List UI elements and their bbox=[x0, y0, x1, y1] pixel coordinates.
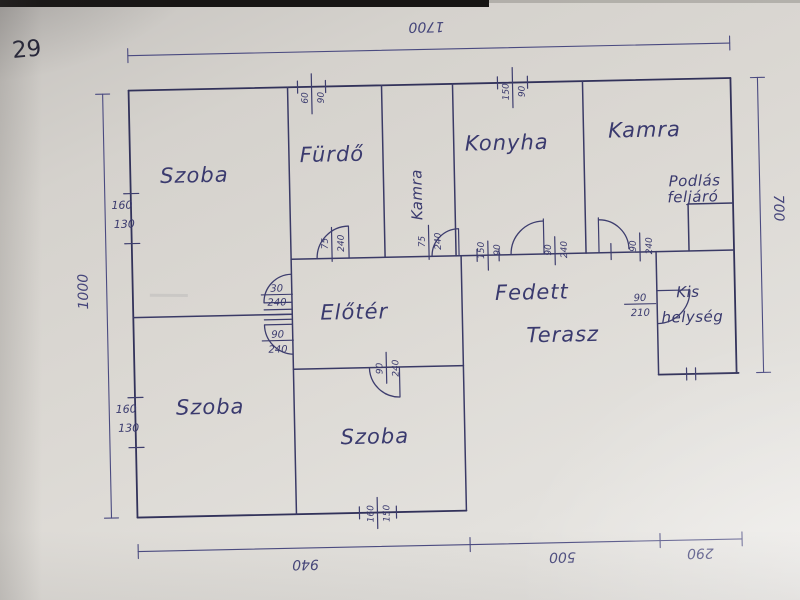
room-label-szoba-bottom-mid: Szoba bbox=[340, 424, 409, 449]
svg-text:30: 30 bbox=[270, 283, 283, 294]
svg-text:160: 160 bbox=[366, 505, 376, 523]
page-number: 29 bbox=[11, 35, 43, 64]
dim-left-value: 1000 bbox=[75, 274, 92, 310]
svg-text:130: 130 bbox=[118, 421, 139, 434]
door-szoba-lower: 90 240 bbox=[261, 324, 294, 356]
wall-furdo-kamra bbox=[382, 85, 386, 257]
attic-nook-left bbox=[688, 204, 689, 251]
window-left-bottom: 160 130 bbox=[98, 397, 158, 448]
svg-text:75: 75 bbox=[321, 237, 331, 249]
wall-outer-left bbox=[129, 91, 138, 518]
svg-text:75: 75 bbox=[418, 235, 428, 247]
wall-mid-horizontal bbox=[291, 250, 734, 259]
room-label-helyseg: helység bbox=[661, 307, 723, 326]
svg-text:240: 240 bbox=[268, 344, 287, 355]
dim-bottom-mid-value: 500 bbox=[549, 548, 576, 565]
svg-text:240: 240 bbox=[645, 237, 655, 255]
dim-left: 1000 bbox=[72, 94, 119, 519]
svg-text:90: 90 bbox=[271, 329, 284, 340]
svg-text:90: 90 bbox=[317, 91, 327, 103]
room-label-konyha: Konyha bbox=[465, 130, 549, 156]
svg-text:240: 240 bbox=[337, 234, 347, 252]
wall-konyha-kamra bbox=[582, 81, 586, 253]
room-label-szoba-bottom-left: Szoba bbox=[176, 394, 245, 419]
door-label-konyha: 90 240 bbox=[544, 241, 570, 259]
svg-text:240: 240 bbox=[267, 297, 286, 308]
walls bbox=[129, 78, 742, 518]
window-label-left-top: 160 130 bbox=[94, 198, 154, 231]
photo-of-floor-plan: { "page_number": "29", "rooms": { "szoba… bbox=[0, 0, 800, 600]
wall-kis-bottom bbox=[659, 373, 739, 375]
wall-outer-top bbox=[129, 78, 731, 91]
svg-text:150: 150 bbox=[477, 241, 487, 259]
room-label-terasz: Terasz bbox=[526, 322, 599, 348]
svg-text:210: 210 bbox=[631, 308, 650, 319]
door-kamra-mid: 75 240 bbox=[417, 225, 459, 260]
wall-szoba-eloter bbox=[288, 87, 297, 514]
door-label-kis-helyseg: 90 210 bbox=[624, 293, 657, 320]
window-label-left-bottom: 160 130 bbox=[98, 402, 158, 435]
door-kis-helyseg: 90 210 bbox=[624, 290, 696, 381]
svg-text:90: 90 bbox=[493, 244, 503, 256]
wall-eloter-terasz bbox=[461, 256, 466, 511]
room-label-kamra-mid: Kamra bbox=[407, 169, 426, 220]
room-label-kamra-right: Kamra bbox=[608, 117, 681, 143]
door-label-kamra-mid: 75 240 bbox=[418, 232, 444, 250]
door-label-szoba-upper: 30 240 bbox=[261, 283, 294, 309]
dim-top: 1700 bbox=[127, 12, 730, 63]
window-label-furdo: 60 90 bbox=[301, 91, 327, 103]
svg-text:90: 90 bbox=[629, 240, 639, 252]
svg-text:90: 90 bbox=[375, 362, 385, 374]
wall-terasz-kis bbox=[656, 252, 659, 375]
svg-text:150: 150 bbox=[501, 83, 511, 101]
svg-text:160: 160 bbox=[116, 403, 137, 416]
dim-bottom: 940 500 290 bbox=[138, 532, 743, 576]
door-kamra-right: 90 240 bbox=[598, 217, 655, 262]
door-konyha: 90 240 bbox=[510, 218, 570, 265]
room-label-szoba-top-left: Szoba bbox=[160, 163, 229, 188]
plan-sheet: 29 Szoba Fürdő Kamra Konyha Kamra E bbox=[11, 11, 794, 578]
window-konyha: 150 90 bbox=[497, 67, 528, 108]
dim-top-value: 1700 bbox=[408, 18, 444, 35]
svg-text:240: 240 bbox=[560, 241, 570, 259]
door-label-szoba-bottom: 90 240 bbox=[375, 359, 401, 377]
window-left-top: 160 130 bbox=[94, 193, 154, 244]
window-label-konyha: 150 90 bbox=[501, 82, 527, 100]
svg-text:90: 90 bbox=[544, 244, 554, 256]
svg-text:240: 240 bbox=[434, 232, 444, 250]
pencil-smudge bbox=[150, 294, 188, 296]
svg-text:160: 160 bbox=[111, 199, 132, 212]
room-label-fedett: Fedett bbox=[495, 279, 569, 305]
window-furdo: 60 90 bbox=[297, 73, 327, 114]
door-label-szoba-lower: 90 240 bbox=[262, 329, 295, 356]
dim-bottom-left-value: 940 bbox=[292, 556, 319, 573]
label-feljaro: feljáró bbox=[667, 187, 718, 206]
room-label-furdo: Fürdő bbox=[300, 142, 365, 167]
door-szoba-upper: 30 240 bbox=[260, 274, 293, 320]
floor-plan-drawing: 29 Szoba Fürdő Kamra Konyha Kamra E bbox=[0, 0, 800, 600]
dim-right: 700 bbox=[750, 77, 789, 373]
svg-text:90: 90 bbox=[518, 85, 528, 97]
svg-text:240: 240 bbox=[391, 359, 401, 377]
svg-text:90: 90 bbox=[634, 293, 647, 304]
window-label-terasz: 150 90 bbox=[477, 241, 503, 259]
dim-bottom-right-value: 290 bbox=[687, 544, 714, 561]
room-label-kis: Kis bbox=[676, 283, 700, 301]
wall-outer-bottom bbox=[137, 511, 466, 518]
dim-right-value: 700 bbox=[770, 195, 787, 222]
door-szoba-bottom: 90 240 bbox=[369, 352, 402, 398]
door-furdo: 75 240 bbox=[316, 226, 349, 262]
svg-text:150: 150 bbox=[382, 504, 392, 522]
svg-text:130: 130 bbox=[114, 218, 135, 231]
svg-text:60: 60 bbox=[301, 92, 311, 104]
wall-outer-right bbox=[730, 78, 736, 373]
room-label-eloter: Előtér bbox=[320, 299, 389, 324]
